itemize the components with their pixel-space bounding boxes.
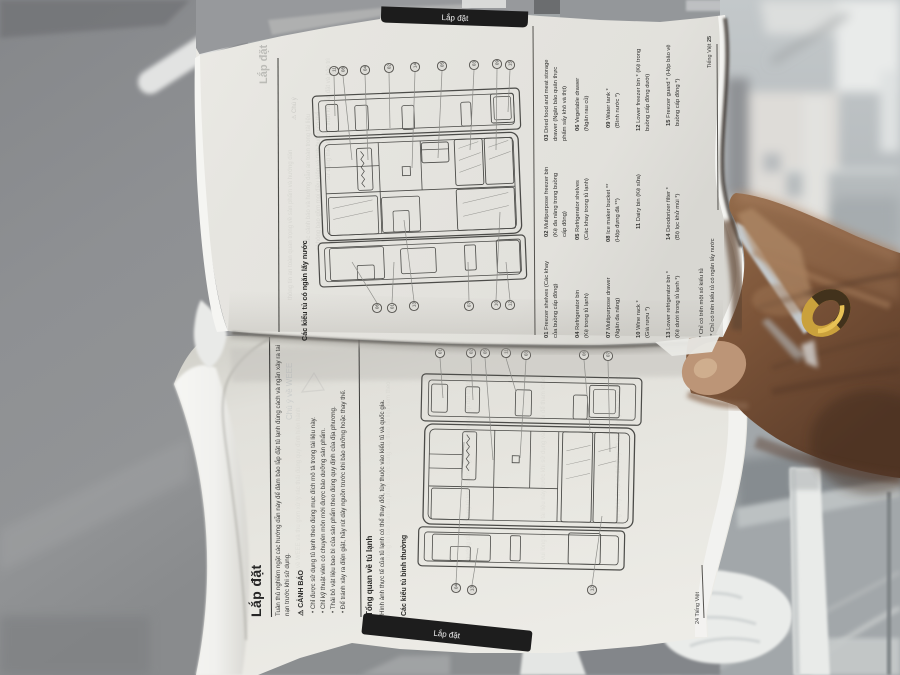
svg-text:⚠ Chú ý: ⚠ Chú ý: [291, 97, 298, 120]
svg-text:11: 11: [332, 67, 337, 72]
svg-text:02 Multipurpose freezer bin: 02 Multipurpose freezer bin: [544, 167, 550, 237]
svg-text:(Kệ đa năng trong buồng: (Kệ đa năng trong buồng: [553, 173, 559, 237]
svg-text:07 Multipurpose drawer: 07 Multipurpose drawer: [606, 277, 612, 338]
svg-text:(Kệ trong tủ lạnh): (Kệ trong tủ lạnh): [583, 293, 590, 338]
svg-text:Tổng quan về tủ lạnh: Tổng quan về tủ lạnh: [365, 535, 374, 616]
svg-text:• Các cảnh báo và hướng dẫn an: • Các cảnh báo và hướng dẫn an toàn tron…: [305, 114, 312, 250]
svg-text:(Giá rượu *): (Giá rượu *): [645, 307, 651, 338]
svg-text:(Hộp đựng đá **): (Hộp đựng đá **): [615, 198, 621, 242]
svg-text:Các kiểu tủ bình thường: Các kiểu tủ bình thường: [400, 535, 408, 616]
svg-text:07: 07: [467, 302, 472, 308]
svg-text:05 Refrigerator shelves: 05 Refrigerator shelves: [575, 180, 581, 240]
svg-text:03 Dried food and meat storage: 03 Dried food and meat storage: [544, 59, 550, 141]
svg-text:thông tin bảo hành sản phẩm đư: thông tin bảo hành sản phẩm được cung cấ…: [385, 381, 392, 560]
svg-text:04: 04: [363, 66, 368, 72]
svg-text:06: 06: [375, 304, 380, 310]
svg-text:• Để tránh xảy ra điện giật,: • Để tránh xảy ra điện giật, hãy rút dây…: [340, 389, 347, 613]
svg-text:Lắp đặt: Lắp đặt: [441, 13, 469, 23]
svg-text:• Chỉ được sử dụng tủ lạnh th: • Chỉ được sử dụng tủ lạnh theo đúng mục…: [310, 417, 317, 613]
svg-text:04 Refrigerator bin: 04 Refrigerator bin: [575, 290, 581, 338]
svg-text:(Các khay trong tủ lạnh): (Các khay trong tủ lạnh): [583, 178, 590, 240]
svg-text:(Ngăn rau củ): (Ngăn rau củ): [583, 95, 590, 131]
svg-text:(Kệ dưới trong tủ lạnh *): (Kệ dưới trong tủ lạnh *): [674, 275, 681, 338]
svg-text:** Chỉ có trên kiểu tủ có ngăn: ** Chỉ có trên kiểu tủ có ngăn lấy nước: [709, 238, 716, 338]
svg-text:13: 13: [470, 586, 475, 592]
svg-text:Lắp đặt: Lắp đặt: [247, 564, 264, 617]
svg-text:(Bộ lọc khử mùi *): (Bộ lọc khử mùi *): [674, 194, 681, 240]
svg-text:08 Ice maker bucket **: 08 Ice maker bucket **: [606, 183, 612, 242]
svg-text:phẩm sấy khô và thịt): phẩm sấy khô và thịt): [561, 86, 568, 141]
svg-text:drawer (Ngăn bảo quản thực: drawer (Ngăn bảo quản thực: [553, 67, 559, 141]
svg-text:14 Deodorizer filter *: 14 Deodorizer filter *: [666, 186, 672, 240]
svg-text:03: 03: [472, 61, 477, 67]
svg-text:08: 08: [341, 67, 346, 73]
svg-text:11 Dairy bin (Kệ sữa): 11 Dairy bin (Kệ sữa): [636, 174, 642, 229]
svg-text:15: 15: [508, 61, 513, 67]
svg-text:• Thải bỏ vật liệu bao bì của: • Thải bỏ vật liệu bao bì của sản phẩm t…: [330, 406, 337, 613]
svg-text:(Bình nước *): (Bình nước *): [615, 93, 621, 128]
svg-text:02: 02: [387, 64, 392, 70]
svg-text:Lắp đặt: Lắp đặt: [257, 45, 270, 84]
svg-text:của buồng cấp đông): của buồng cấp đông): [552, 283, 559, 338]
svg-text:09: 09: [495, 60, 500, 66]
svg-text:Hình ảnh thực tế của tủ lạnh c: Hình ảnh thực tế của tủ lạnh có thể thay…: [379, 399, 386, 615]
svg-text:13 Lower refrigerator bin *: 13 Lower refrigerator bin *: [666, 270, 672, 338]
svg-text:thông tin an toàn quan trọng v: thông tin an toàn quan trọng về sản phẩm…: [287, 150, 294, 300]
svg-text:12 Lower freezer bin * (Kệ tro: 12 Lower freezer bin * (Kệ trong: [636, 49, 642, 131]
svg-text:12: 12: [590, 586, 595, 592]
svg-text:Tiếng Việt 25: Tiếng Việt 25: [707, 36, 713, 68]
svg-text:14: 14: [413, 63, 418, 69]
svg-text:01: 01: [390, 304, 395, 310]
svg-text:* Chỉ có trên một số kiểu tủ: * Chỉ có trên một số kiểu tủ: [698, 268, 705, 338]
svg-text:Các kiểu tủ có ngăn lấy nước: Các kiểu tủ có ngăn lấy nước: [300, 240, 309, 341]
svg-text:04: 04: [454, 584, 459, 590]
svg-text:24 Tiếng Việt: 24 Tiếng Việt: [695, 592, 701, 624]
svg-text:vui lòng đọc kỹ tài liệu này t: vui lòng đọc kỹ tài liệu này trước khi s…: [540, 376, 547, 560]
svg-text:05: 05: [440, 62, 445, 68]
svg-text:13: 13: [412, 302, 417, 308]
svg-text:15 Freezer guard * (Hộp bảo vệ: 15 Freezer guard * (Hộp bảo vệ: [666, 44, 672, 126]
svg-text:Chú ý về WEEE: Chú ý về WEEE: [285, 363, 294, 420]
svg-text:01 Freezer shelves (Các khay: 01 Freezer shelves (Các khay: [544, 261, 550, 338]
svg-text:cấp đông): cấp đông): [562, 211, 568, 237]
svg-text:buồng cấp đông *): buồng cấp đông *): [675, 79, 681, 126]
svg-text:Tuân thủ nghiêm ngặt các hướng: Tuân thủ nghiêm ngặt các hướng dẫn này đ…: [275, 345, 282, 616]
svg-text:(Ngăn đa năng): (Ngăn đa năng): [615, 298, 621, 338]
svg-text:06 Vegetable drawer: 06 Vegetable drawer: [575, 78, 581, 131]
svg-text:buồng cấp đông dưới): buồng cấp đông dưới): [645, 74, 651, 131]
svg-text:• Chỉ kỹ thuật viên có chuyên: • Chỉ kỹ thuật viên có chuyên môn mới đư…: [320, 428, 327, 613]
svg-text:⚠ CẢNH BÁO: ⚠ CẢNH BÁO: [296, 570, 305, 616]
svg-text:09 Water tank *: 09 Water tank *: [606, 88, 612, 128]
svg-text:10: 10: [494, 301, 499, 307]
svg-text:10 Wine rack *: 10 Wine rack *: [636, 300, 642, 338]
svg-text:nạn trước khi sử dụng.: nạn trước khi sử dụng.: [284, 553, 291, 616]
svg-text:12: 12: [508, 301, 513, 307]
